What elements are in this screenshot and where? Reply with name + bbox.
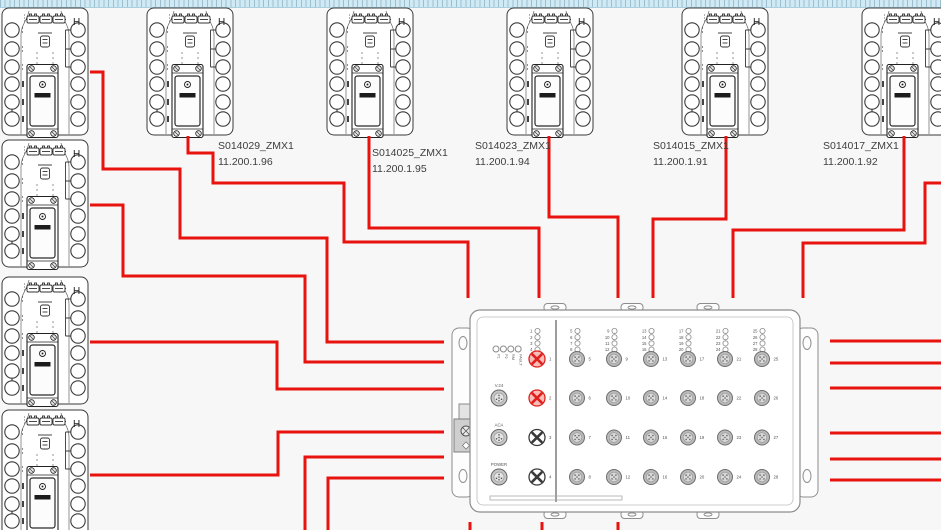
port-led <box>686 341 691 346</box>
status-led-p2 <box>500 346 506 352</box>
device-name: S014023_ZMX1 <box>475 139 551 155</box>
port-led <box>760 341 765 346</box>
port-number: 20 <box>700 475 705 480</box>
network-wire[interactable] <box>328 478 444 530</box>
port-number: 24 <box>737 475 742 480</box>
port-led <box>723 328 728 333</box>
port-led-number: 23 <box>716 341 721 346</box>
port-led-number: 19 <box>679 341 684 346</box>
device-ip: 11.200.1.91 <box>653 155 729 171</box>
port-led <box>575 328 580 333</box>
module-top-4[interactable] <box>682 8 768 138</box>
device-label: S014023_ZMX111.200.1.94 <box>475 139 551 170</box>
status-led-label: P1 <box>496 354 500 359</box>
status-led-fault <box>515 346 521 352</box>
port-number: 13 <box>663 357 668 362</box>
service-port-power[interactable]: POWER <box>491 462 507 485</box>
port-led-number: 15 <box>642 341 647 346</box>
port-led <box>575 335 580 340</box>
device-ip: 11.200.1.95 <box>372 162 448 178</box>
device-name: S014017_ZMX1 <box>823 139 899 155</box>
port-led <box>686 335 691 340</box>
module-top-2[interactable] <box>327 8 413 138</box>
status-led-label: RM <box>511 354 515 360</box>
port-led-number: 17 <box>679 329 684 334</box>
wiring-diagram: H <box>0 0 941 530</box>
port-led <box>535 328 540 333</box>
ground-hook <box>459 404 470 419</box>
port-led-number: 25 <box>753 329 758 334</box>
module-top-1[interactable] <box>147 8 233 138</box>
module-left-1[interactable] <box>2 8 88 138</box>
port-led <box>575 341 580 346</box>
port-led <box>760 335 765 340</box>
ethernet-switch[interactable]: P1P2RMFAULT12345678910111213141516171819… <box>452 304 818 519</box>
port-led-number: 14 <box>642 335 647 340</box>
port-led-number: 10 <box>605 335 610 340</box>
device-label: S014025_ZMX111.200.1.95 <box>372 146 448 177</box>
device-name: S014015_ZMX1 <box>653 139 729 155</box>
diagram-canvas[interactable]: H <box>0 0 941 530</box>
port-led <box>760 328 765 333</box>
port-number: 19 <box>700 435 705 440</box>
module-top-5[interactable] <box>862 8 941 138</box>
port-led <box>649 341 654 346</box>
port-number: 18 <box>700 396 705 401</box>
status-led-label: FAULT <box>519 354 523 366</box>
port-number: 23 <box>737 435 742 440</box>
device-ip: 11.200.1.96 <box>218 155 294 171</box>
module-left-2[interactable] <box>2 140 88 270</box>
network-wire[interactable] <box>90 432 444 475</box>
port-number: 15 <box>663 435 668 440</box>
port-led-number: 24 <box>716 347 721 352</box>
port-led <box>612 328 617 333</box>
network-wire[interactable] <box>549 136 618 298</box>
port-led <box>612 335 617 340</box>
port-led-number: 21 <box>716 329 721 334</box>
service-port-label: POWER <box>491 462 507 467</box>
service-port-label: V.24 <box>495 383 504 388</box>
device-label: S014015_ZMX111.200.1.91 <box>653 139 729 170</box>
port-number: 21 <box>737 357 742 362</box>
port-number: 26 <box>774 396 779 401</box>
port-number: 10 <box>626 396 631 401</box>
port-led <box>535 335 540 340</box>
module-top-3[interactable] <box>507 8 593 138</box>
port-number: 22 <box>737 396 742 401</box>
port-led-number: 16 <box>642 347 647 352</box>
device-label: S014029_ZMX111.200.1.96 <box>218 139 294 170</box>
status-led-label: P2 <box>504 354 508 359</box>
network-wire[interactable] <box>90 342 444 389</box>
device-name: S014029_ZMX1 <box>218 139 294 155</box>
port-number: 17 <box>700 357 705 362</box>
status-led-rm <box>508 346 514 352</box>
network-wire[interactable] <box>803 183 941 298</box>
network-wire[interactable] <box>305 457 444 530</box>
device-label: S014017_ZMX111.200.1.92 <box>823 139 899 170</box>
port-led <box>723 335 728 340</box>
port-led <box>535 341 540 346</box>
port-led-number: 26 <box>753 335 758 340</box>
port-led-number: 12 <box>605 347 610 352</box>
port-number: 16 <box>663 475 668 480</box>
port-led <box>649 335 654 340</box>
port-led-number: 27 <box>753 341 758 346</box>
port-led <box>612 341 617 346</box>
service-port-label: ACA <box>495 423 504 428</box>
port-number: 25 <box>774 357 779 362</box>
device-name: S014025_ZMX1 <box>372 146 448 162</box>
port-number: 11 <box>626 435 631 440</box>
port-led-number: 13 <box>642 329 647 334</box>
port-led-number: 20 <box>679 347 684 352</box>
port-led-number: 22 <box>716 335 721 340</box>
switch-body[interactable] <box>470 310 800 512</box>
status-led-p1 <box>493 346 499 352</box>
port-led-number: 18 <box>679 335 684 340</box>
device-ip: 11.200.1.94 <box>475 155 551 171</box>
port-led <box>723 341 728 346</box>
port-number: 14 <box>663 396 668 401</box>
module-left-4[interactable] <box>2 410 88 530</box>
port-number: 27 <box>774 435 779 440</box>
port-led-number: 11 <box>605 341 610 346</box>
port-number: 28 <box>774 475 779 480</box>
module-left-3[interactable] <box>2 277 88 407</box>
port-led <box>686 328 691 333</box>
port-led <box>649 328 654 333</box>
device-ip: 11.200.1.92 <box>823 155 899 171</box>
port-number: 12 <box>626 475 631 480</box>
port-led-number: 28 <box>753 347 758 352</box>
